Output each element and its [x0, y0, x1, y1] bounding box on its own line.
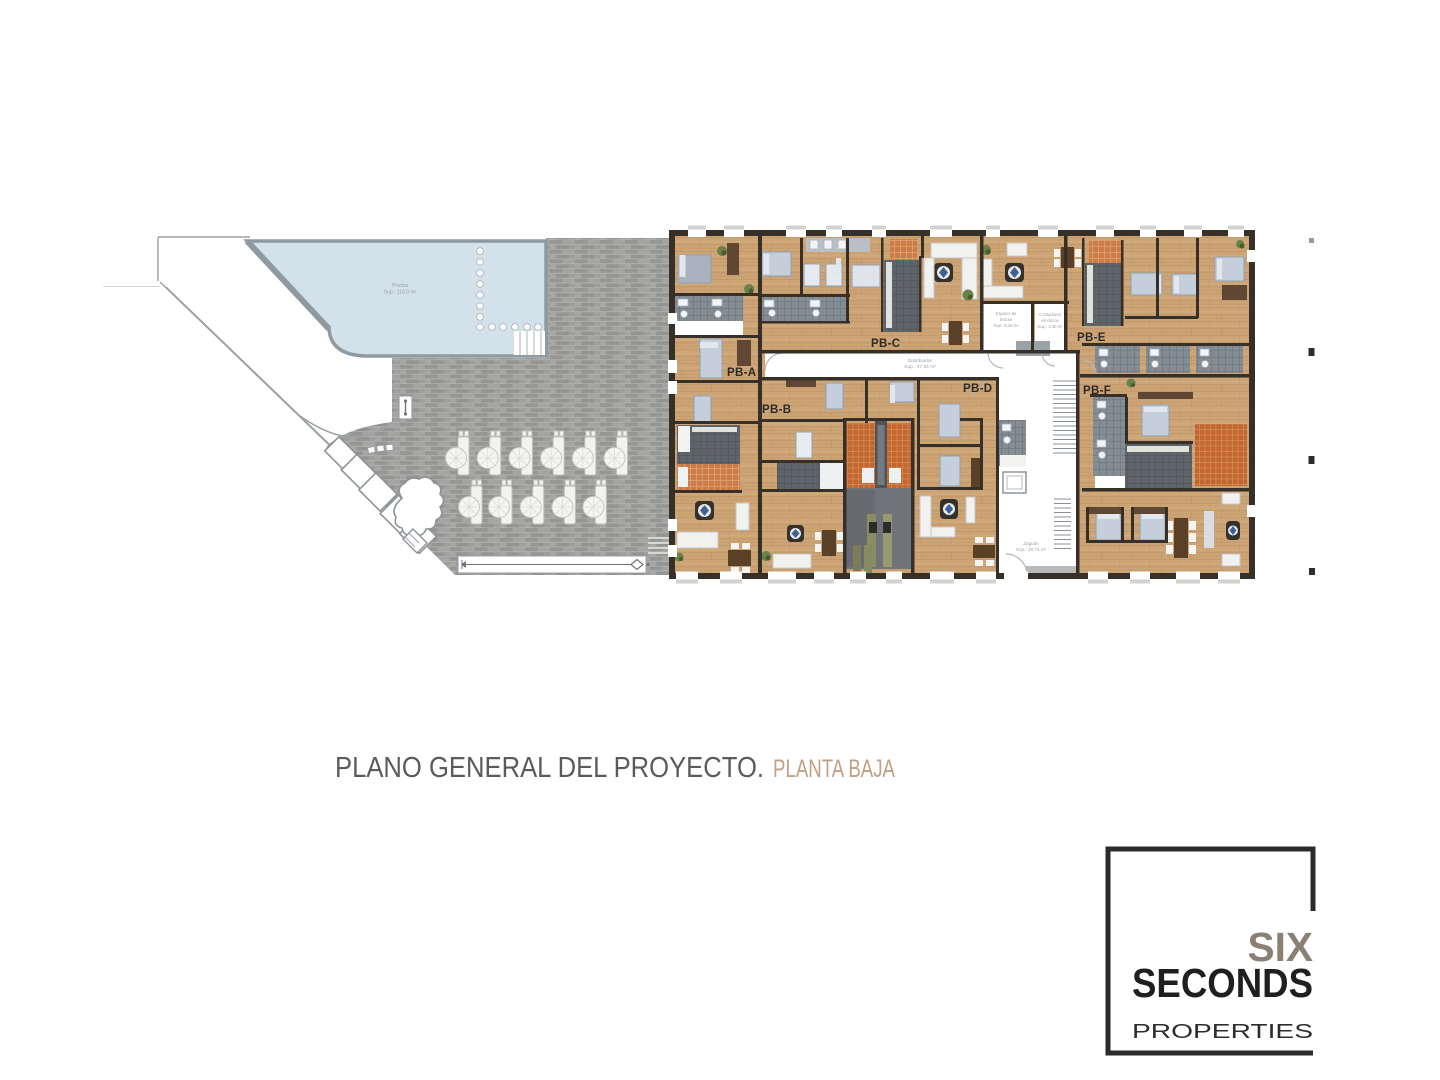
svg-text:Sup.: 8,43 m²: Sup.: 8,43 m²: [993, 323, 1019, 328]
svg-text:PB-E: PB-E: [1077, 332, 1106, 344]
svg-text:PB-F: PB-F: [1083, 385, 1111, 397]
svg-text:Sup.: 3,40 m²: Sup.: 3,40 m²: [1037, 324, 1063, 329]
svg-text:lectura: lectura: [1000, 317, 1013, 322]
svg-text:PB-A: PB-A: [727, 367, 756, 379]
svg-text:Sup.: 47,34 m²: Sup.: 47,34 m²: [904, 364, 936, 370]
svg-text:PB-D: PB-D: [963, 383, 992, 395]
svg-text:Contadores: Contadores: [1039, 312, 1061, 317]
svg-text:Distribuidor: Distribuidor: [908, 358, 933, 364]
svg-text:PLANO GENERAL DEL PROYECTO.: PLANO GENERAL DEL PROYECTO.: [335, 752, 764, 784]
svg-text:PB-B: PB-B: [762, 404, 791, 416]
svg-text:eléctricos: eléctricos: [1041, 318, 1059, 323]
svg-text:PLANTA BAJA: PLANTA BAJA: [773, 755, 895, 783]
svg-text:Espacio de: Espacio de: [996, 311, 1017, 316]
svg-text:Piscina: Piscina: [392, 283, 408, 289]
svg-text:PROPERTIES: PROPERTIES: [1132, 1021, 1313, 1043]
svg-text:Sup.: 116,0 m²: Sup.: 116,0 m²: [384, 290, 417, 296]
svg-text:PB-C: PB-C: [871, 338, 900, 350]
svg-text:SECONDS: SECONDS: [1132, 960, 1313, 1006]
svg-text:Sup.: 16,74 m²: Sup.: 16,74 m²: [1016, 547, 1047, 552]
svg-text:Zaguán: Zaguán: [1023, 541, 1039, 546]
